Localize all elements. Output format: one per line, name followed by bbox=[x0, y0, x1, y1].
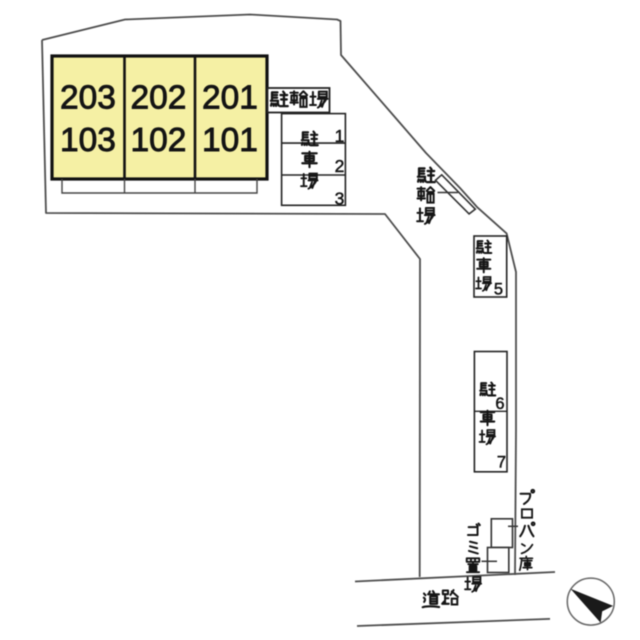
svg-text:202: 202 bbox=[131, 80, 187, 117]
svg-text:6: 6 bbox=[495, 395, 504, 413]
svg-text:2: 2 bbox=[335, 156, 345, 176]
svg-text:5: 5 bbox=[494, 281, 503, 299]
svg-text:7: 7 bbox=[497, 454, 506, 472]
svg-text:103: 103 bbox=[60, 122, 116, 159]
svg-text:3: 3 bbox=[335, 189, 345, 209]
svg-text:201: 201 bbox=[202, 80, 258, 117]
svg-text:102: 102 bbox=[131, 122, 187, 159]
svg-text:1: 1 bbox=[335, 126, 345, 146]
svg-text:203: 203 bbox=[60, 80, 116, 117]
svg-text:101: 101 bbox=[202, 122, 258, 159]
